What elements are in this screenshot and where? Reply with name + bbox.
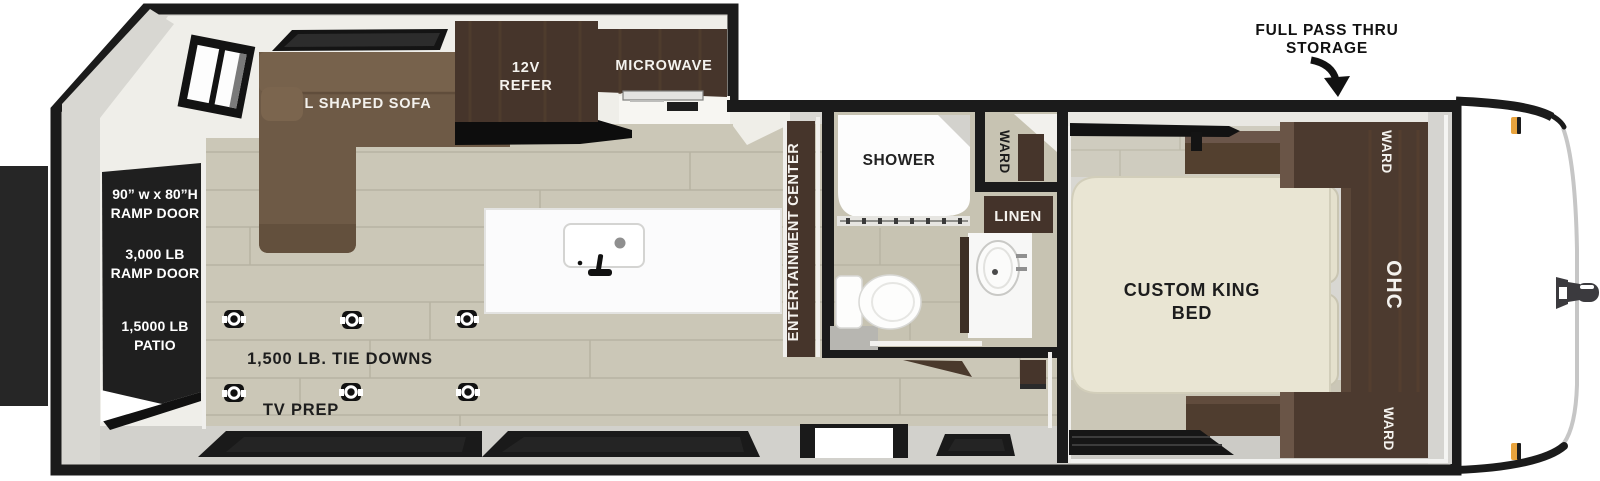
svg-text:MICROWAVE: MICROWAVE: [615, 58, 712, 74]
svg-text:STORAGE: STORAGE: [1286, 40, 1368, 57]
svg-text:REFER: REFER: [499, 78, 552, 94]
svg-text:3,000 LB: 3,000 LB: [125, 246, 184, 262]
svg-text:WARD: WARD: [1379, 130, 1394, 174]
svg-text:WARD: WARD: [997, 130, 1012, 174]
svg-text:90” w x 80”H: 90” w x 80”H: [112, 186, 198, 202]
svg-text:TV PREP: TV PREP: [263, 401, 339, 419]
svg-text:SHOWER: SHOWER: [863, 152, 936, 169]
svg-text:OHC: OHC: [1382, 260, 1405, 310]
svg-text:RAMP DOOR: RAMP DOOR: [111, 265, 200, 281]
svg-text:WARD: WARD: [1381, 407, 1396, 451]
svg-text:PATIO: PATIO: [134, 337, 176, 353]
svg-text:BED: BED: [1172, 303, 1212, 323]
svg-text:12V: 12V: [512, 60, 540, 76]
svg-text:ENTERTAINMENT CENTER: ENTERTAINMENT CENTER: [786, 143, 802, 342]
svg-text:CUSTOM KING: CUSTOM KING: [1124, 280, 1260, 300]
svg-text:RAMP DOOR: RAMP DOOR: [111, 205, 200, 221]
svg-text:FULL PASS THRU: FULL PASS THRU: [1255, 22, 1398, 39]
svg-text:LINEN: LINEN: [994, 208, 1042, 225]
svg-text:1,500 LB. TIE DOWNS: 1,500 LB. TIE DOWNS: [247, 350, 433, 368]
svg-text:1,5000 LB: 1,5000 LB: [121, 318, 188, 334]
svg-text:L SHAPED SOFA: L SHAPED SOFA: [305, 96, 432, 112]
